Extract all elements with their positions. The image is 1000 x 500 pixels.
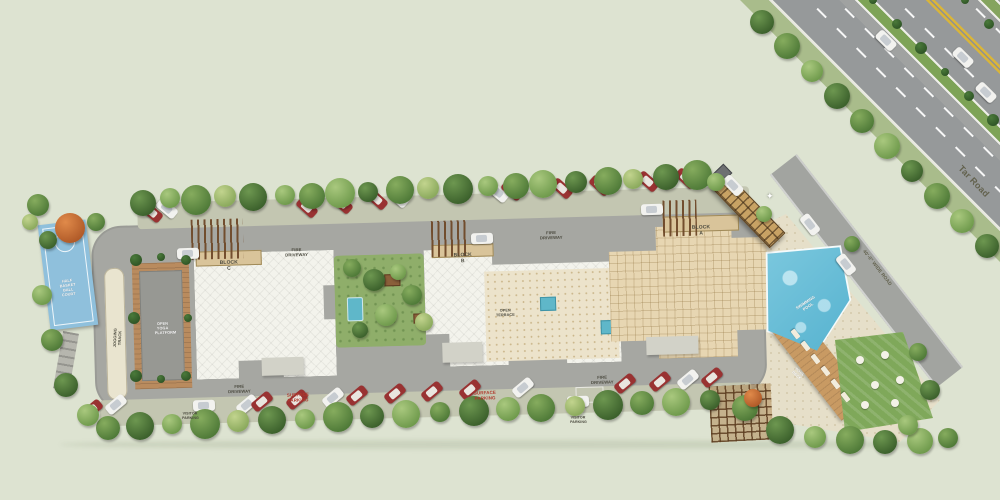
parked-car bbox=[676, 368, 700, 391]
tree bbox=[363, 269, 385, 291]
tree bbox=[162, 414, 182, 434]
tree bbox=[55, 213, 85, 243]
tree bbox=[239, 183, 267, 211]
bush bbox=[987, 114, 999, 126]
tree bbox=[227, 410, 249, 432]
bush bbox=[984, 19, 994, 29]
car-roof bbox=[956, 51, 969, 64]
bush bbox=[915, 42, 927, 54]
site-plan: Tar Road 40'-0" WIDE ROAD ✦ SWIMMING POO… bbox=[0, 0, 1000, 500]
car-roof bbox=[618, 378, 631, 390]
tree bbox=[343, 259, 361, 277]
tree bbox=[478, 176, 498, 196]
tree bbox=[181, 185, 211, 215]
tree bbox=[901, 160, 923, 182]
tree bbox=[565, 396, 585, 416]
tree bbox=[430, 402, 450, 422]
car-roof bbox=[653, 376, 666, 388]
car-roof bbox=[109, 399, 122, 411]
tree bbox=[214, 185, 236, 207]
bush bbox=[181, 255, 191, 265]
parked-car bbox=[974, 81, 997, 104]
basketball-court-label: HALF BASKET BALL COURT bbox=[59, 278, 78, 298]
pool-lounger bbox=[790, 329, 800, 340]
parked-car bbox=[951, 46, 974, 69]
tree bbox=[824, 83, 850, 109]
tree bbox=[850, 109, 874, 133]
parked-car bbox=[613, 372, 637, 395]
tree bbox=[415, 313, 433, 331]
tree bbox=[756, 206, 772, 222]
tree bbox=[844, 236, 860, 252]
vegetation-and-cars bbox=[0, 0, 1000, 500]
bush bbox=[130, 254, 142, 266]
parked-car bbox=[835, 252, 857, 276]
tree bbox=[352, 322, 368, 338]
surface-parking-label: SURFACE PARKING bbox=[280, 392, 316, 404]
tree bbox=[39, 231, 57, 249]
bush bbox=[892, 19, 902, 29]
tree bbox=[975, 234, 999, 258]
tree bbox=[653, 164, 679, 190]
gate-ornament-icon: ✦ bbox=[766, 191, 774, 202]
car-roof bbox=[476, 235, 487, 242]
parked-car bbox=[345, 384, 369, 407]
tree bbox=[130, 190, 156, 216]
tree bbox=[750, 10, 774, 34]
tree bbox=[22, 214, 38, 230]
tree bbox=[744, 389, 762, 407]
parked-car bbox=[874, 29, 897, 52]
bush bbox=[157, 375, 165, 383]
bush bbox=[941, 68, 949, 76]
lawn-table bbox=[891, 399, 899, 407]
parked-car bbox=[104, 393, 128, 416]
lawn-table bbox=[861, 401, 869, 409]
car-roof bbox=[804, 218, 816, 231]
tree bbox=[417, 177, 439, 199]
bush bbox=[130, 370, 142, 382]
tree bbox=[258, 406, 286, 434]
tree bbox=[299, 183, 325, 209]
tree bbox=[630, 391, 654, 415]
car-roof bbox=[516, 382, 529, 394]
car-roof bbox=[726, 179, 739, 192]
tree bbox=[443, 174, 473, 204]
tree bbox=[920, 380, 940, 400]
bush bbox=[128, 312, 140, 324]
tree bbox=[358, 182, 378, 202]
tree bbox=[275, 185, 295, 205]
bush bbox=[181, 371, 191, 381]
tree bbox=[804, 426, 826, 448]
tree bbox=[325, 178, 355, 208]
car-roof bbox=[979, 86, 992, 99]
parked-car bbox=[511, 376, 535, 399]
tree bbox=[87, 213, 105, 231]
bush bbox=[961, 0, 969, 4]
tree bbox=[360, 404, 384, 428]
car-roof bbox=[681, 374, 694, 386]
pool-lounger bbox=[800, 341, 810, 352]
bush bbox=[869, 0, 877, 4]
tree bbox=[527, 394, 555, 422]
tree bbox=[938, 428, 958, 448]
bush bbox=[964, 91, 974, 101]
pool-lounger bbox=[820, 366, 830, 377]
parked-car bbox=[700, 366, 724, 389]
parked-car bbox=[471, 233, 493, 245]
tree bbox=[402, 285, 422, 305]
car-roof bbox=[879, 34, 892, 47]
car-roof bbox=[646, 206, 657, 213]
tree bbox=[707, 173, 725, 191]
tree bbox=[565, 171, 587, 193]
tree bbox=[700, 390, 720, 410]
tree bbox=[594, 167, 622, 195]
tree bbox=[126, 412, 154, 440]
tree bbox=[593, 390, 623, 420]
parked-car bbox=[420, 380, 444, 403]
tree bbox=[295, 409, 315, 429]
tree bbox=[27, 194, 49, 216]
tree bbox=[662, 388, 690, 416]
car-roof bbox=[705, 372, 718, 384]
visitor-parking-label: VISITOR PARKING bbox=[182, 412, 198, 421]
surface-parking-label: SURFACE PARKING bbox=[467, 390, 503, 402]
tree bbox=[950, 209, 974, 233]
tree bbox=[392, 400, 420, 428]
tree bbox=[873, 430, 897, 454]
pool-lounger bbox=[840, 392, 850, 403]
tree bbox=[503, 173, 529, 199]
tree bbox=[54, 373, 78, 397]
tree bbox=[96, 416, 120, 440]
parked-car bbox=[641, 204, 663, 216]
visitor-parking-label: VISITOR PARKING bbox=[570, 416, 586, 425]
pool-lounger bbox=[830, 379, 840, 390]
tree bbox=[774, 33, 800, 59]
tree bbox=[529, 170, 557, 198]
lawn-table bbox=[871, 381, 879, 389]
tree bbox=[386, 176, 414, 204]
car-roof bbox=[425, 386, 438, 398]
tree bbox=[323, 402, 353, 432]
tree bbox=[623, 169, 643, 189]
tree bbox=[909, 343, 927, 361]
lawn-table bbox=[856, 356, 864, 364]
pool-lounger bbox=[810, 354, 820, 365]
tree bbox=[898, 415, 918, 435]
tree bbox=[874, 133, 900, 159]
car-roof bbox=[350, 390, 363, 402]
lawn-table bbox=[896, 376, 904, 384]
tree bbox=[41, 329, 63, 351]
bush bbox=[184, 314, 192, 322]
parked-car bbox=[799, 212, 821, 236]
bush bbox=[157, 253, 165, 261]
tree bbox=[32, 285, 52, 305]
car-roof bbox=[388, 388, 401, 400]
parked-car bbox=[721, 174, 744, 197]
tree bbox=[77, 404, 99, 426]
tree bbox=[160, 188, 180, 208]
tree bbox=[801, 60, 823, 82]
tree bbox=[836, 426, 864, 454]
tree bbox=[924, 183, 950, 209]
car-roof bbox=[840, 258, 852, 271]
tree bbox=[375, 304, 397, 326]
tree bbox=[766, 416, 794, 444]
lawn-table bbox=[881, 351, 889, 359]
tree bbox=[390, 264, 406, 280]
